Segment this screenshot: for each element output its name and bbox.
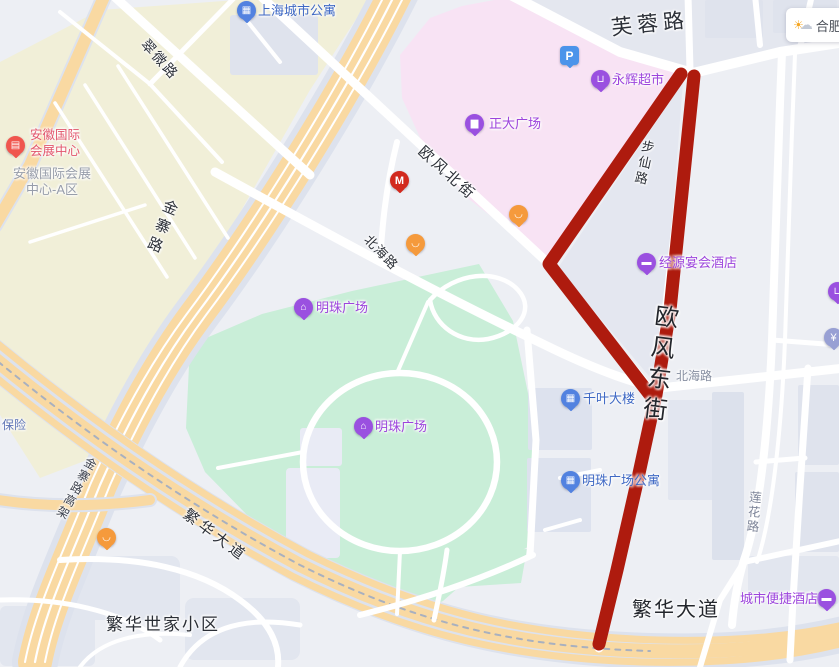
parking-icon[interactable]: P bbox=[560, 46, 579, 65]
restaurant-icon[interactable]: ◡ bbox=[97, 528, 116, 547]
road-label-fanhua-east: 繁华大道 bbox=[632, 598, 720, 623]
plaza-icon[interactable]: ⌂ bbox=[354, 417, 373, 436]
mcdonalds-icon[interactable]: M bbox=[390, 171, 409, 190]
building-icon[interactable]: ▦ bbox=[561, 471, 580, 490]
road-label-beihai-east: 北海路 bbox=[676, 369, 712, 384]
hotel-bed-icon[interactable]: ▬ bbox=[637, 253, 656, 272]
hotel-bed-icon[interactable]: ▬ bbox=[817, 589, 836, 608]
area-label-anhui-expo-a: 安徽国际会展 中心-A区 bbox=[0, 166, 104, 199]
poi-label-shanghai-city-apartment[interactable]: 上海城市公寓 bbox=[258, 3, 336, 19]
city-name: 合肥 bbox=[816, 16, 839, 35]
poi-label-mingzhu-plaza-1[interactable]: 明珠广场 bbox=[316, 300, 368, 316]
city-weather-widget[interactable]: ☀☁ 合肥 bbox=[786, 8, 839, 42]
poi-label-zhengda-plaza[interactable]: 正大广场 bbox=[489, 116, 541, 132]
shopping-cart-icon[interactable]: ⊔ bbox=[591, 70, 610, 89]
building-icon[interactable]: ▦ bbox=[237, 1, 256, 20]
area-label-fanhua-estate: 繁华世家小区 bbox=[106, 614, 220, 635]
poi-label-jingyuan-hotel[interactable]: 经源宴会酒店 bbox=[659, 255, 737, 271]
restaurant-icon[interactable]: ◡ bbox=[509, 205, 528, 224]
poi-label-mingzhu-apartment[interactable]: 明珠广场公寓 bbox=[582, 473, 660, 489]
poi-label-yonghui[interactable]: 永辉超市 bbox=[612, 72, 664, 88]
poi-label-mingzhu-plaza-2[interactable]: 明珠广场 bbox=[375, 419, 427, 435]
poi-label-anhui-expo[interactable]: 安徽国际 会展中心 bbox=[30, 128, 80, 159]
poi-label-city-comfort-inn[interactable]: 城市便捷酒店 bbox=[740, 591, 818, 607]
exhibition-icon[interactable]: ▤ bbox=[6, 136, 25, 155]
poi-label-qianye-building[interactable]: 千叶大楼 bbox=[583, 391, 635, 407]
map-canvas[interactable] bbox=[0, 0, 839, 667]
restaurant-icon[interactable]: ◡ bbox=[406, 234, 425, 253]
shopping-bag-icon[interactable]: ▆ bbox=[465, 114, 484, 133]
plaza-icon[interactable]: ⌂ bbox=[294, 298, 313, 317]
building-icon[interactable]: ▦ bbox=[561, 389, 580, 408]
map-viewport[interactable]: 芙蓉路 翠微路 金寨路 金寨路高架 欧风北街 步仙路 北海路 北海路 欧风东街 … bbox=[0, 0, 839, 667]
bank-icon[interactable]: ¥ bbox=[824, 328, 839, 347]
poi-label-baoxian: 保险 bbox=[2, 418, 26, 433]
road-label-lianhua: 莲花路 bbox=[742, 490, 761, 535]
